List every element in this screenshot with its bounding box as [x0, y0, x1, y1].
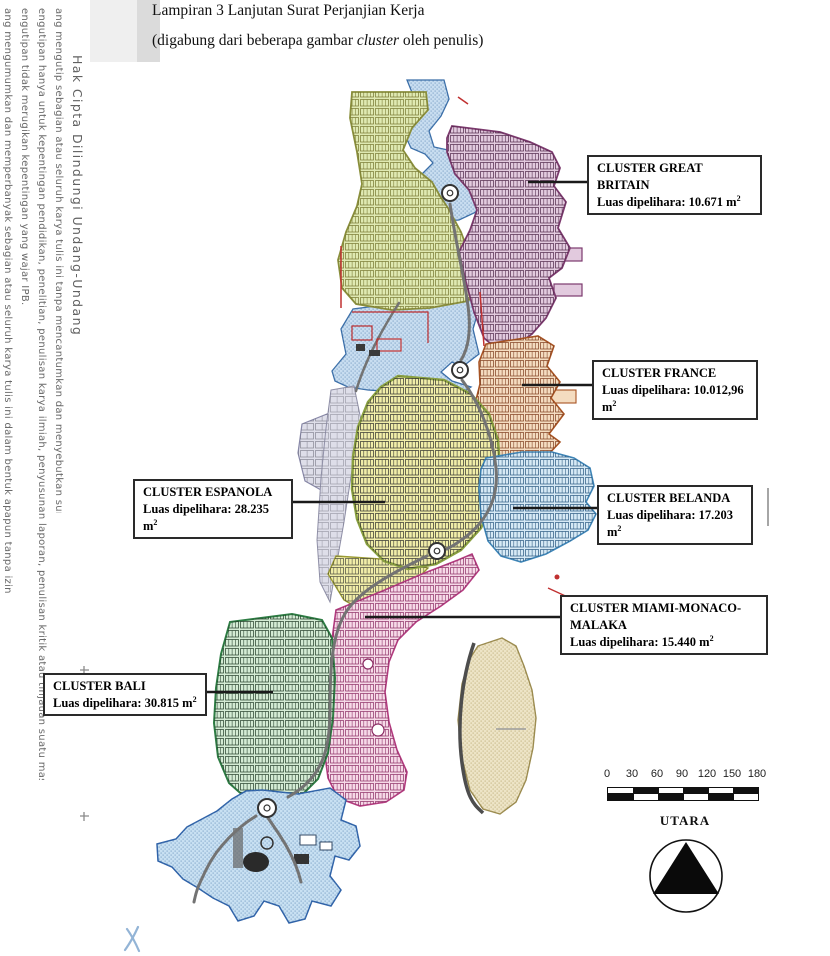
cluster-title: CLUSTER MIAMI-MONACO-MALAKA — [570, 600, 758, 634]
scale-tick: 180 — [748, 768, 766, 780]
scale-tick: 150 — [723, 768, 741, 780]
scale-tick: 60 — [651, 768, 663, 780]
cluster-label-bali: CLUSTER BALI Luas dipelihara: 30.815 m2 — [43, 673, 207, 716]
cluster-title: CLUSTER BELANDA — [607, 490, 743, 507]
pen-mark — [125, 927, 139, 951]
cluster-area: Luas dipelihara: 17.203 m2 — [607, 507, 743, 541]
north-compass-icon — [649, 839, 723, 913]
scale-bar — [607, 787, 759, 801]
scale-tick: 0 — [604, 768, 610, 780]
scale-tick: 120 — [698, 768, 716, 780]
cluster-label-great-britain: CLUSTER GREAT BRITAIN Luas dipelihara: 1… — [587, 155, 762, 215]
cluster-label-miami-monaco-malaka: CLUSTER MIAMI-MONACO-MALAKA Luas dipelih… — [560, 595, 768, 655]
cluster-title: CLUSTER GREAT BRITAIN — [597, 160, 752, 194]
cluster-title: CLUSTER ESPANOLA — [143, 484, 283, 501]
scale-tick: 30 — [626, 768, 638, 780]
scale-segment — [658, 794, 683, 800]
cluster-label-france: CLUSTER FRANCE Luas dipelihara: 10.012,9… — [592, 360, 758, 420]
scale-bar-ticks: 0 30 60 90 120 150 180 — [600, 768, 764, 782]
scale-segment — [683, 794, 708, 800]
north-label: UTARA — [640, 813, 730, 829]
map-region-bali — [214, 614, 335, 805]
document-page: Hak Cipta Dilindungi Undang-Undang ang m… — [0, 0, 830, 956]
cluster-area: Luas dipelihara: 30.815 m2 — [53, 695, 197, 712]
cluster-area: Luas dipelihara: 15.440 m2 — [570, 634, 758, 651]
cluster-title: CLUSTER FRANCE — [602, 365, 748, 382]
cluster-area: Luas dipelihara: 28.235 m2 — [143, 501, 283, 535]
map-region-beige-reserve — [458, 638, 536, 814]
scale-tick: 90 — [676, 768, 688, 780]
scale-segment — [733, 794, 758, 800]
cluster-title: CLUSTER BALI — [53, 678, 197, 695]
cluster-area: Luas dipelihara: 10.012,96 m2 — [602, 382, 748, 416]
scale-segment — [633, 794, 658, 800]
scale-segment — [708, 794, 733, 800]
cluster-area: Luas dipelihara: 10.671 m2 — [597, 194, 752, 211]
cluster-label-espanola: CLUSTER ESPANOLA Luas dipelihara: 28.235… — [133, 479, 293, 539]
cluster-label-belanda: CLUSTER BELANDA Luas dipelihara: 17.203 … — [597, 485, 753, 545]
scale-segment — [608, 794, 633, 800]
